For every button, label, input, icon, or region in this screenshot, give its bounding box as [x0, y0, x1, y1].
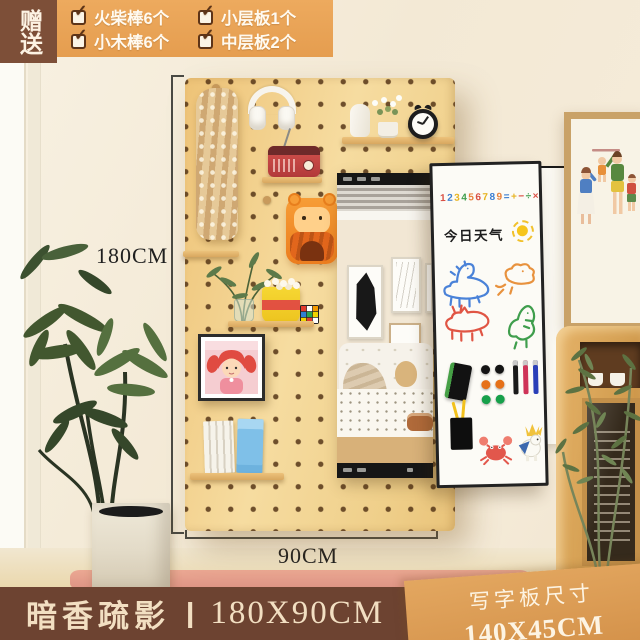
headphone-earcup [249, 106, 266, 130]
rail-hardware [343, 468, 352, 472]
magnet-character: 7 [482, 193, 488, 203]
pencil [461, 400, 466, 419]
checkbox-icon: ✓ [198, 34, 213, 49]
backpack-pocket-arch [300, 241, 324, 261]
pot-pebbles [99, 506, 163, 517]
checkmark-icon: ✓ [74, 28, 87, 44]
magnet-character: 1 [440, 194, 446, 204]
crab-magnet [478, 432, 513, 465]
checkmark-icon: ✓ [201, 28, 214, 44]
magnet-character: 5 [468, 193, 474, 203]
picture-book [236, 419, 263, 474]
width-dimension-tick-right [436, 530, 438, 539]
rail-hardware [357, 177, 366, 181]
product-image: 180CM 90CM [0, 0, 640, 640]
magnet-character: + [511, 192, 517, 202]
promo-item-label: 小木棒6个 [94, 29, 169, 53]
checkbox-icon: ✓ [198, 10, 213, 25]
floor-plant [5, 222, 205, 522]
popcorn [264, 280, 271, 287]
alarm-clock [408, 109, 438, 139]
clock-bell [414, 104, 422, 110]
radio-grill [273, 159, 297, 172]
magnet-character: × [533, 192, 539, 202]
checkbox-icon: ✓ [71, 10, 86, 25]
top-shelf [342, 137, 454, 144]
gift-label-box: 赠送 [0, 0, 57, 63]
rail-hardware [343, 177, 352, 181]
dinosaur-doodles [437, 258, 545, 360]
magnet-character: ÷ [526, 192, 532, 202]
board-eraser [444, 362, 472, 401]
gift-label: 赠送 [16, 9, 42, 55]
weather-title: 今日天气 [444, 224, 504, 245]
reflected-blinds [337, 185, 433, 211]
marker-pens [513, 360, 544, 403]
whiteboard: 123456789=+−÷× 今日天气 [429, 161, 548, 488]
magnet-character: 3 [454, 194, 460, 204]
middle-shelf [228, 321, 314, 327]
flowers [372, 100, 378, 106]
radio-top-band [268, 146, 320, 155]
photo-frame [198, 334, 265, 401]
rail-hardware [407, 468, 413, 472]
popcorn-label [262, 300, 300, 310]
peg-hook [263, 196, 271, 204]
magnet-dot [482, 395, 491, 404]
rail-hardware [357, 468, 366, 472]
mirror-bottom-rail [337, 463, 433, 478]
magnet-row: 123456789=+−÷× [440, 192, 538, 204]
checkbox-icon: ✓ [71, 34, 86, 49]
black-marker [513, 360, 519, 394]
promo-item-label: 火柴棒6个 [94, 5, 169, 29]
magnet-dot [481, 365, 490, 374]
red-marker [523, 360, 529, 394]
magnet-character: 6 [475, 193, 481, 203]
glass-vase [234, 299, 254, 322]
weather-row: 今日天气 [444, 220, 540, 244]
pen-cup [450, 417, 473, 449]
magnet-character: − [518, 192, 524, 202]
promo-item-label: 小层板1个 [221, 5, 296, 29]
promo-banner: ✓ 火柴棒6个 ✓ 小层板1个 ✓ 小木棒6个 ✓ 中层板2个 [57, 0, 333, 57]
scarf [196, 88, 238, 240]
tiger-eye [319, 216, 323, 220]
flower-pot [378, 122, 398, 138]
checkmark-icon: ✓ [201, 4, 214, 20]
backpack-ear [288, 193, 301, 206]
board-size-label: 180X90CM [210, 595, 384, 632]
badge-title: 写字板尺寸 [468, 577, 595, 616]
backpack-ear [323, 193, 336, 206]
footer-divider: | [184, 597, 197, 630]
width-dimension-label: 90CM [278, 543, 338, 569]
small-shelf [262, 177, 322, 183]
reflected-molding [337, 211, 433, 220]
promo-item: ✓ 中层板2个 [198, 29, 325, 53]
abstract-art [352, 270, 378, 334]
mirror-reflection [337, 185, 433, 463]
vintage-radio [268, 146, 320, 177]
magnet-character: 9 [497, 193, 503, 203]
magnet-dot [481, 380, 490, 389]
reflected-floor [337, 437, 433, 463]
magnet-dot [494, 365, 503, 374]
tiger-eye [302, 216, 306, 220]
unicorn-toy [516, 422, 547, 463]
width-dimension-tick-left [185, 530, 187, 539]
popcorn-bucket [262, 287, 300, 323]
width-dimension-line [185, 537, 438, 539]
tiger-backpack [286, 198, 338, 264]
blue-marker [533, 360, 539, 394]
plant-pot [92, 503, 170, 589]
headphones [248, 86, 296, 132]
rail-hardware [371, 177, 380, 181]
book-stack [203, 420, 235, 473]
promo-item: ✓ 小层板1个 [198, 5, 325, 29]
magnet-character: 2 [447, 194, 453, 204]
height-dimension-tick-bottom [171, 532, 184, 534]
sliding-mirror [337, 173, 433, 478]
headphone-earcup [278, 106, 295, 130]
sun-doodle [512, 220, 534, 242]
magnet-dot [495, 395, 504, 404]
series-name: 暗香疏影 [26, 591, 170, 636]
reflected-frame-abstract [347, 265, 383, 339]
checkmark-icon: ✓ [74, 4, 87, 20]
sun-core [517, 225, 528, 236]
magnet-character: 4 [461, 193, 467, 203]
white-vase [350, 104, 370, 137]
girl-artwork [205, 341, 258, 394]
reflected-stool [407, 413, 433, 431]
sketch-art [396, 262, 416, 308]
reflected-cushion [395, 361, 417, 387]
backpack-pocket [290, 232, 334, 261]
magnet-character: = [504, 193, 510, 203]
promo-item-label: 中层板2个 [221, 29, 296, 53]
magnet-dots [481, 365, 506, 408]
mirror-top-rail [337, 173, 433, 185]
reflected-frame-sketch [391, 257, 421, 313]
olive-plant [545, 250, 640, 575]
height-dimension-tick-top [171, 75, 184, 77]
promo-item: ✓ 火柴棒6个 [71, 5, 192, 29]
radio-dial [303, 160, 314, 171]
promo-item: ✓ 小木棒6个 [71, 29, 192, 53]
magnet-character: 8 [489, 193, 495, 203]
magnet-dot [495, 380, 504, 389]
tiger-face [294, 207, 330, 233]
